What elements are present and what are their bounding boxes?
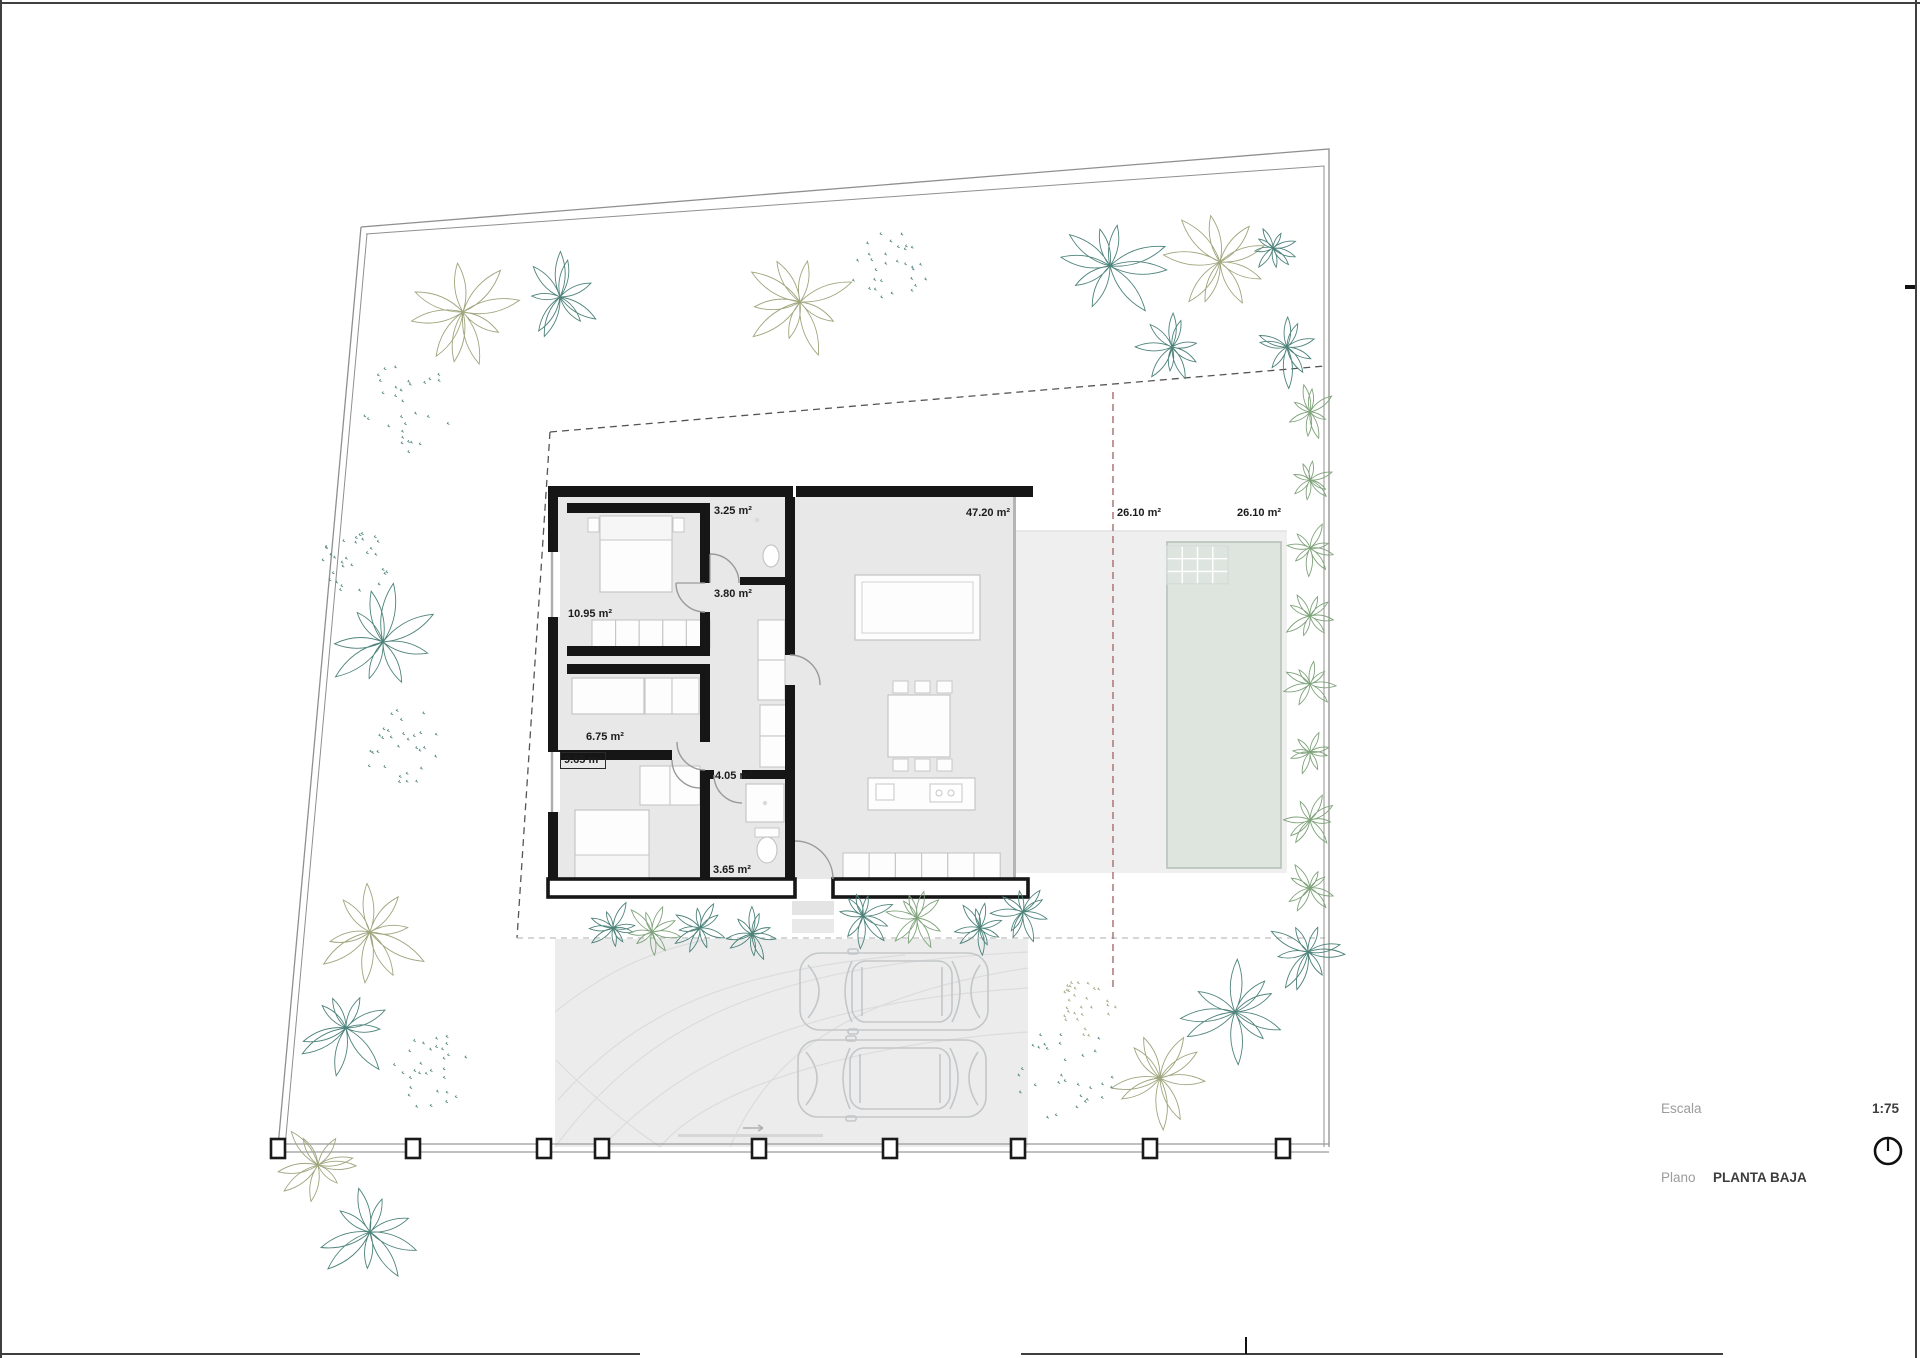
room-label-hall2: 4.05 m² xyxy=(715,770,753,782)
room-label-bath1: 3.25 m² xyxy=(714,505,752,517)
north-icon xyxy=(1871,1134,1905,1168)
plan-name-value: PLANTA BAJA xyxy=(1713,1170,1807,1185)
site-plan-drawing xyxy=(0,0,1920,1358)
room-label-dressing: 6.75 m² xyxy=(586,731,624,743)
room-label-terrace: 26.10 m² xyxy=(1117,507,1161,519)
room-label-bed2: 9.65 m² xyxy=(560,752,606,769)
room-label-bed1: 10.95 m² xyxy=(568,608,612,620)
scale-value: 1:75 xyxy=(1872,1101,1899,1116)
room-label-pool: 26.10 m² xyxy=(1237,507,1281,519)
plan-name-label: Plano xyxy=(1661,1170,1696,1185)
scale-label: Escala xyxy=(1661,1101,1702,1116)
room-label-living: 47.20 m² xyxy=(966,507,1010,519)
room-label-hall: 3.80 m² xyxy=(714,588,752,600)
room-label-bath2: 3.65 m² xyxy=(713,864,751,876)
plan-sheet: 3.25 m² 47.20 m² 26.10 m² 26.10 m² 3.80 … xyxy=(0,0,1920,1358)
